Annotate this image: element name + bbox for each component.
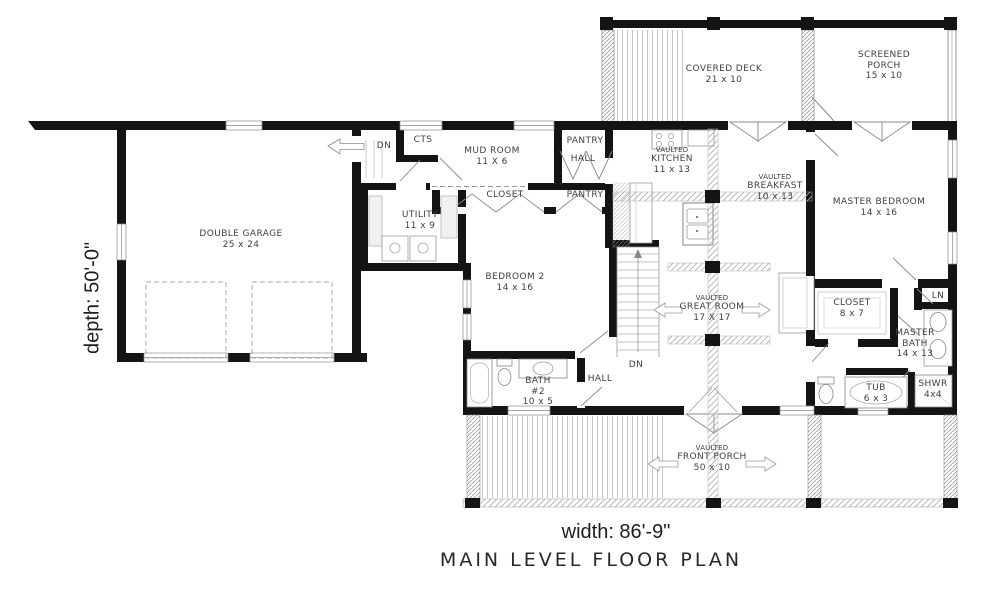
label-master-bedroom: MASTER BEDROOM14 x 16 [833, 197, 926, 218]
label-bedroom-2: BEDROOM 214 x 16 [485, 272, 544, 293]
bedroom2-bottom-wall [463, 351, 575, 359]
master-bottom-wall [806, 279, 957, 288]
porch-arrow-right [746, 457, 776, 471]
label-master-bath: MASTERBATH14 x 13 [895, 328, 934, 360]
car-space-2 [252, 282, 332, 358]
label-pantry-lower: PANTRY [567, 190, 604, 201]
breakfast-deck-door [730, 122, 758, 141]
porch-boards [482, 416, 666, 498]
washer [382, 236, 408, 261]
stair-wall [609, 247, 617, 337]
fireplace [779, 273, 814, 333]
floor-plan-drawing [0, 0, 1000, 593]
width-dimension: width: 86'-9" [562, 521, 671, 544]
deck-porch-divider [802, 30, 814, 123]
utility-right-wall [458, 190, 466, 271]
label-shower: SHWR4x4 [918, 379, 947, 400]
label-screened-porch: SCREENEDPORCH15 x 10 [858, 50, 910, 82]
label-covered-deck: COVERED DECK21 x 10 [686, 64, 762, 85]
label-tub: TUB6 x 3 [864, 383, 889, 404]
master-toilet [818, 377, 834, 384]
label-utility: UTILITY11 x 9 [402, 210, 438, 231]
toilet-2 [497, 359, 512, 366]
label-stairs-dn: DN [629, 360, 643, 371]
deck-top-wall [600, 20, 957, 28]
label-cts: CTS [414, 135, 433, 146]
label-pantry-upper: PANTRY [567, 136, 604, 147]
label-mud-room: MUD ROOM11 X 6 [464, 146, 520, 167]
label-master-closet: CLOSET8 x 7 [833, 298, 870, 319]
plan-title: MAIN LEVEL FLOOR PLAN [440, 549, 742, 571]
wing-wall-taper [28, 121, 46, 130]
label-linen: LN [932, 291, 945, 302]
label-kitchen: VAULTEDKITCHEN11 x 13 [651, 146, 693, 175]
label-closet-bedroom2: CLOSET [486, 190, 523, 201]
dryer [410, 236, 436, 261]
label-bath-2: BATH#210 x 5 [523, 376, 554, 408]
screened-porch-door-leaf [812, 97, 834, 121]
top-wall [44, 121, 957, 130]
great-room-arrow-right [742, 303, 770, 317]
utility-bottom-wall [360, 263, 466, 271]
depth-dimension: depth: 50'-0" [82, 242, 105, 354]
car-space-1 [146, 282, 226, 358]
kitchen-left-wall [605, 129, 613, 248]
label-garage-dn: DN [377, 141, 391, 152]
floor-plan-page: COVERED DECK21 x 10 SCREENEDPORCH15 x 10… [0, 0, 1000, 593]
deck-left-post-strip [602, 30, 614, 123]
master-deck-door [854, 122, 882, 141]
label-hall-upper: HALL [571, 154, 596, 165]
label-front-porch: VAULTEDFRONT PORCH50 x 10 [677, 444, 746, 473]
label-hall-lower: HALL [588, 374, 613, 385]
deck-boards [616, 30, 686, 123]
stairs [617, 247, 659, 357]
label-double-garage: DOUBLE GARAGE25 x 24 [199, 229, 282, 250]
label-great-room: VAULTEDGREAT ROOM17 X 17 [680, 294, 745, 323]
label-breakfast: VAULTEDBREAKFAST10 x 13 [747, 173, 803, 202]
